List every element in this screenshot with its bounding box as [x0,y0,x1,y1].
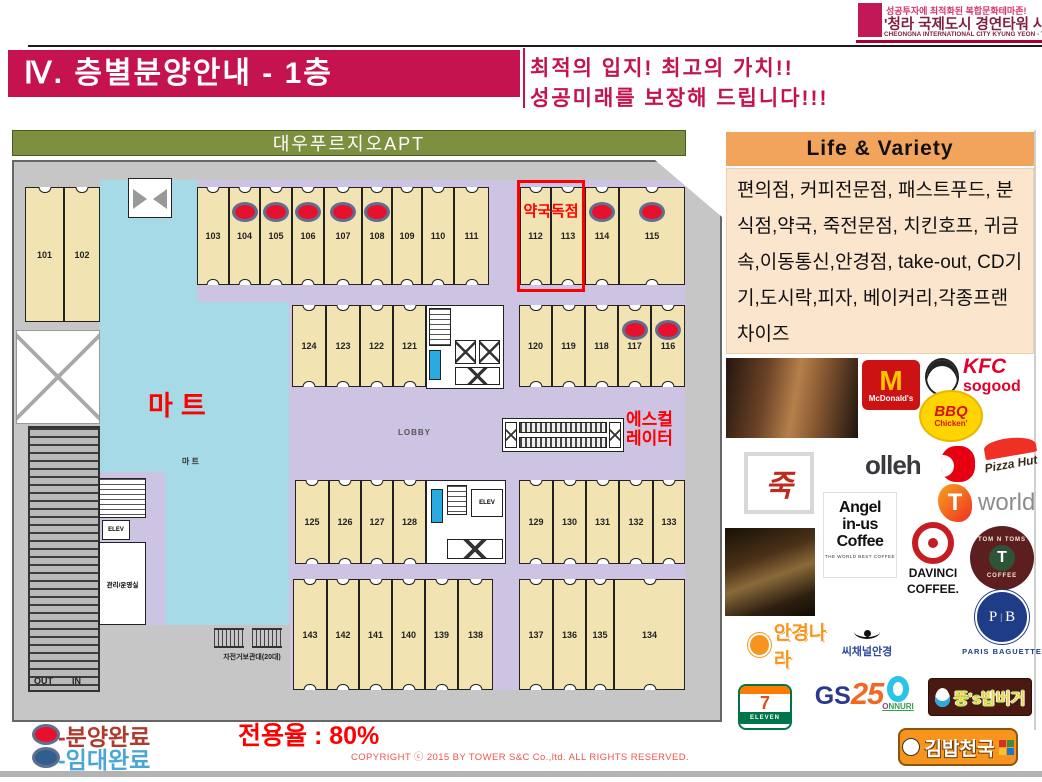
unit-number: 121 [402,341,417,351]
unit-number: 120 [528,341,543,351]
service-area-icon [455,367,500,385]
unit-109: 109 [392,187,422,285]
door-arc-icon [465,279,478,285]
door-arc-icon [403,480,416,486]
davinci-seal-icon [912,522,954,564]
unit-number: 131 [595,517,610,527]
logo-davinci-coffee: DAVINCI COFFEE. [896,522,970,600]
door-arc-icon [663,558,676,564]
mart-label: 마트 [148,384,214,423]
unit-141: 141 [359,579,392,690]
unit-number: 114 [595,231,610,241]
page-title: Ⅳ. 층별분양안내 - 1층 [8,50,520,97]
logo-juk-sign: 죽 [744,452,814,514]
door-arc-icon [304,579,317,585]
door-arc-icon [371,558,384,564]
unit-139: 139 [425,579,458,690]
unit-132: 132 [619,480,653,564]
unit-101: 101 [25,187,64,322]
unit-122: 122 [360,305,393,387]
floor-plan: OUT IN ELEV 관리/운영실 ELEV 에스컬 레이터 마트 마 트 L… [12,160,722,722]
unit-number: 139 [434,630,449,640]
mart-entrance-vestibule [128,178,172,218]
bike-rack-icon [252,628,282,648]
logo-tom-n-toms: TOM N TOMS T COFFEE [970,526,1034,590]
unit-130: 130 [553,480,586,564]
door-arc-icon [469,684,482,690]
unit-number: 117 [627,341,642,351]
mcdonalds-arches-icon: M [879,368,902,394]
unit-137: 137 [519,579,553,690]
unit-number: 106 [300,231,315,241]
door-arc-icon [401,187,414,193]
unit-number: 102 [74,250,89,260]
door-arc-icon [371,187,384,193]
sold-dot [263,202,289,222]
door-arc-icon [595,381,608,387]
monkey-mascot-icon [748,633,771,657]
door-arc-icon [630,480,643,486]
sold-dot [655,320,681,340]
unit-104: 104 [229,187,260,285]
unit-number: 127 [369,517,384,527]
logo-kimbap-cheonguk: 김밥천국 [898,728,1018,766]
door-arc-icon [302,279,315,285]
logo-t-world: T world [938,478,1040,528]
door-arc-icon [596,279,609,285]
slide: { "header": { "badge_line1": "성공투자에 최적화된… [0,0,1042,782]
unit-124: 124 [292,305,326,387]
tomntoms-t-icon: T [989,545,1015,571]
door-arc-icon [207,187,220,193]
door-arc-icon [369,579,382,585]
stairs-icon [447,485,467,515]
lobby-label: LOBBY [398,428,431,437]
unit-114: 114 [585,187,619,285]
unit-number: 123 [335,341,350,351]
door-arc-icon [303,305,316,311]
unit-140: 140 [392,579,425,690]
door-arc-icon [530,579,543,585]
shaft-icon [431,489,443,523]
door-arc-icon [646,279,659,285]
apt-bar: 대우푸르지오APT [12,130,686,156]
door-arc-icon [596,558,609,564]
door-arc-icon [529,305,542,311]
slogan-line-2: 성공미래를 보장해 드립니다!!! [530,82,829,112]
unit-number: 116 [661,341,676,351]
door-arc-icon [530,684,543,690]
unit-126: 126 [329,480,361,564]
cafe-photo [725,528,815,616]
kimbap-squares-icon [999,740,1014,755]
unit-135: 135 [586,579,614,690]
unit-number: 118 [594,341,609,351]
unit-134: 134 [614,579,685,690]
door-arc-icon [337,187,350,193]
elevator-core-north [426,305,504,389]
unit-number: 133 [661,517,676,527]
unit-121: 121 [393,305,426,387]
badge-underline [856,40,1042,43]
void-area [16,330,100,424]
unit-142: 142 [327,579,359,690]
unit-number: 108 [369,231,384,241]
life-variety-body: 편의점, 커피전문점, 패스트푸드, 분식점,약국, 죽전문점, 치킨호프, 귀… [726,168,1034,354]
unit-108: 108 [362,187,392,285]
drop-mascot-icon [935,688,950,707]
slide-bottom-edge [0,771,1042,777]
unit-number: 110 [431,231,446,241]
door-arc-icon [337,381,350,387]
door-arc-icon [530,558,543,564]
door-arc-icon [563,558,576,564]
escalator-label: 에스컬 레이터 [626,410,673,448]
door-arc-icon [643,684,656,690]
unit-119: 119 [552,305,585,387]
bike-rack-label: 자전거보관대(20대) [202,652,302,662]
door-arc-icon [238,279,251,285]
t-symbol-icon: T [938,484,972,522]
door-arc-icon [465,187,478,193]
door-arc-icon [563,684,576,690]
copyright-text: COPYRIGHT ⓒ 2015 BY TOWER S&C Co.,ltd. A… [300,749,740,763]
door-arc-icon [370,381,383,387]
unit-number: 124 [301,341,316,351]
door-arc-icon [76,187,89,193]
door-arc-icon [403,305,416,311]
door-arc-icon [306,480,319,486]
unit-138: 138 [458,579,493,690]
logo-bbq-chicken: BBQ Chicken' [919,390,983,442]
logo-angyeong-nara: 안경나라 [748,628,840,662]
logo-ddung-bapburger: 뚱's밥버거 [928,678,1032,716]
elevator-cab-icon [479,340,500,364]
foodcourt-photo [726,358,858,438]
door-arc-icon [435,684,448,690]
unit-number: 136 [562,630,577,640]
door-arc-icon [339,558,352,564]
slogan-line-1: 최적의 입지! 최고의 가치!! [530,52,794,82]
door-arc-icon [337,684,350,690]
door-arc-icon [563,579,576,585]
door-arc-icon [402,684,415,690]
sold-dot [589,202,615,222]
unit-number: 135 [592,630,607,640]
unit-number: 138 [468,630,483,640]
logo-onnuri: ONNURI [878,676,918,728]
unit-number: 134 [642,630,657,640]
door-arc-icon [207,279,220,285]
unit-number: 115 [645,231,660,241]
door-arc-icon [662,305,675,311]
door-arc-icon [337,279,350,285]
unit-number: 130 [562,517,577,527]
elevator-core-south: ELEV [426,480,506,564]
door-arc-icon [38,187,51,193]
unit-102: 102 [64,187,100,322]
stairs-icon [429,308,451,346]
sold-dot [364,202,390,222]
parking-ramp [28,426,100,692]
unit-105: 105 [260,187,292,285]
unit-128: 128 [393,480,426,564]
door-arc-icon [306,558,319,564]
legend-leased-dot [32,747,60,768]
door-arc-icon [595,305,608,311]
sold-dot [639,202,665,222]
life-variety-header: Life & Variety [726,132,1034,166]
eye-pupil-icon [864,630,871,637]
exclusive-rate-label: 전용율 : 80% [238,716,379,752]
door-arc-icon [304,684,317,690]
door-arc-icon [596,480,609,486]
sold-dot [622,320,648,340]
door-arc-icon [563,480,576,486]
legend-sold-dot [32,724,60,745]
unit-129: 129 [519,480,553,564]
escalator-end-icon [609,422,621,448]
slogan-divider [523,48,525,108]
unit-number: 142 [335,630,350,640]
kimbap-mascot-icon [902,738,920,756]
stairs-west [99,478,146,518]
unit-number: 104 [237,231,252,241]
door-arc-icon [432,187,445,193]
logo-paris-baguette: P|B PARIS BAGUETTE [962,590,1042,660]
unit-125: 125 [295,480,329,564]
unit-118: 118 [585,305,618,387]
door-arc-icon [643,579,656,585]
logo-mcdonalds: M McDonald's [862,360,920,410]
door-arc-icon [403,381,416,387]
door-leaf-icon [153,189,167,209]
unit-133: 133 [653,480,685,564]
door-arc-icon [630,558,643,564]
badge-subtitle-en: CHEONGNA INTERNATIONAL CITY KYUNG YEON -… [884,31,1042,38]
unit-number: 109 [399,231,414,241]
unit-127: 127 [361,480,393,564]
unit-120: 120 [519,305,552,387]
unit-number: 126 [337,517,352,527]
door-arc-icon [628,381,641,387]
unit-number: 137 [528,630,543,640]
unit-number: 111 [464,231,478,241]
unit-107: 107 [324,187,362,285]
door-arc-icon [401,279,414,285]
door-arc-icon [337,305,350,311]
logo-angel-in-us: Angel in-us Coffee THE WORLD BEST COFFEE [823,492,897,578]
door-arc-icon [339,480,352,486]
ramp-out-label: OUT [34,676,53,686]
logo-mark [858,3,882,37]
escalator-end-icon [505,422,517,448]
door-arc-icon [562,381,575,387]
logo-c-channel-glasses: 씨채널안경 [836,622,898,668]
unit-number: 122 [369,341,384,351]
unit-106: 106 [292,187,324,285]
door-arc-icon [403,558,416,564]
sold-dot [232,202,258,222]
unit-number: 107 [335,231,350,241]
door-arc-icon [469,579,482,585]
door-arc-icon [370,305,383,311]
logo-seven-eleven: 7 ELEVEN [738,684,792,730]
unit-143: 143 [293,579,327,690]
onnuri-drop-icon [887,676,909,702]
unit-117: 117 [618,305,651,387]
unit-110: 110 [422,187,454,285]
door-arc-icon [596,187,609,193]
door-arc-icon [371,279,384,285]
unit-103: 103 [197,187,229,285]
door-arc-icon [402,579,415,585]
door-arc-icon [303,381,316,387]
door-arc-icon [646,187,659,193]
unit-number: 101 [37,250,52,260]
door-arc-icon [530,480,543,486]
door-leaf-icon [133,189,147,209]
unit-number: 103 [205,231,220,241]
ramp-in-label: IN [72,676,81,686]
door-arc-icon [594,579,607,585]
unit-number: 143 [302,630,317,640]
unit-number: 125 [304,517,319,527]
pharmacy-exclusive-box [517,180,585,292]
escalator [502,418,624,452]
management-room: 관리/운영실 [99,542,146,625]
sold-dot [295,202,321,222]
unit-131: 131 [586,480,619,564]
bike-rack-icon [214,628,244,648]
unit-number: 141 [368,630,383,640]
pharmacy-exclusive-label: 약국독점 [517,200,585,221]
pb-eiffel-icon: P|B [975,590,1029,644]
escalator-belt-icon [519,422,607,433]
door-arc-icon [337,579,350,585]
escalator-belt-icon [519,437,607,448]
elevator-west: ELEV [102,520,130,540]
unit-number: 119 [561,341,576,351]
door-arc-icon [562,305,575,311]
unit-136: 136 [553,579,586,690]
door-arc-icon [435,579,448,585]
door-arc-icon [369,684,382,690]
door-arc-icon [270,187,283,193]
unit-number: 105 [268,231,283,241]
sold-dot [330,202,356,222]
door-arc-icon [663,480,676,486]
door-arc-icon [594,684,607,690]
door-arc-icon [662,381,675,387]
door-arc-icon [238,187,251,193]
door-arc-icon [432,279,445,285]
mart-small-label: 마 트 [182,456,199,467]
door-arc-icon [371,480,384,486]
door-arc-icon [270,279,283,285]
unit-115: 115 [619,187,685,285]
unit-number: 128 [402,517,417,527]
elevator-cab-icon [455,340,476,364]
kt-symbol-icon [941,446,975,482]
door-arc-icon [628,305,641,311]
header-divider-line [28,45,1042,47]
shaft-icon [429,350,441,380]
unit-number: 140 [401,630,416,640]
unit-number: 132 [628,517,643,527]
unit-116: 116 [651,305,685,387]
unit-111: 111 [454,187,489,285]
unit-number: 129 [528,517,543,527]
legend-leased-label: -임대완료 [58,741,150,775]
unit-123: 123 [326,305,360,387]
logo-gs25: GS 25 [812,676,886,718]
service-area-icon [447,539,503,559]
door-arc-icon [529,381,542,387]
door-arc-icon [302,187,315,193]
logo-olleh: olleh [865,450,921,481]
elevator-label: ELEV [471,489,503,517]
